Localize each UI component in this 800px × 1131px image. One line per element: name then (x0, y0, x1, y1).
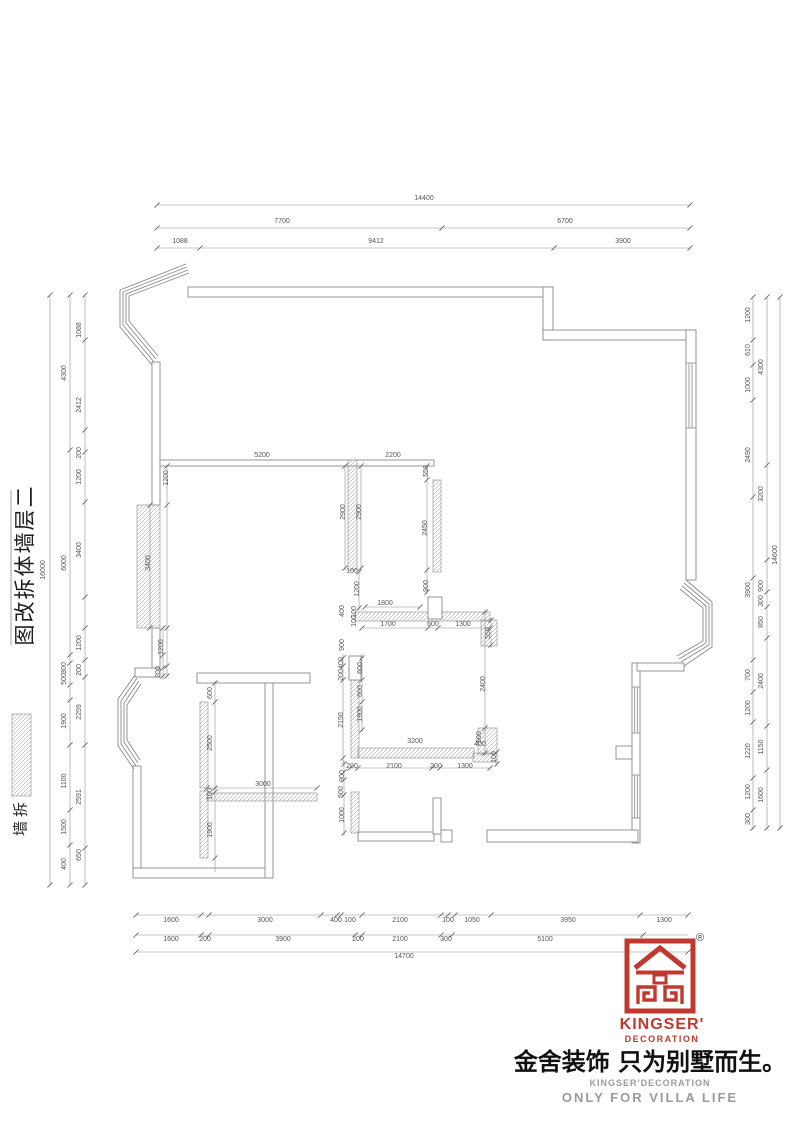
wall (160, 460, 434, 466)
demolish-wall-hatch (207, 793, 317, 801)
dim-label: 1200 (76, 635, 83, 651)
dim-label: 700 (745, 669, 752, 681)
wall (543, 330, 695, 340)
dim-label: 200 (199, 936, 211, 943)
dim-label: 1800 (377, 600, 393, 607)
dim-label: 200 (346, 763, 358, 770)
dim-label: 3900 (745, 582, 752, 598)
vertical-char: 图 (14, 623, 36, 647)
dim-label: 4300 (61, 365, 68, 381)
wall (188, 287, 553, 297)
logo-text-kingser: KINGSER' (592, 1016, 732, 1034)
dim-label: 100 (207, 788, 214, 800)
wall (152, 362, 160, 505)
wall (133, 868, 272, 878)
dim-label: 3950 (560, 917, 576, 924)
wall (441, 830, 452, 842)
dim-label: 1000 (339, 807, 346, 823)
dim-label: 1200 (163, 470, 170, 486)
demolish-wall-hatch (433, 480, 441, 572)
dim-label: 1150 (758, 739, 765, 754)
vertical-char: 二 (14, 485, 36, 509)
dim-label: 100 (442, 917, 454, 924)
kingser-logo (622, 938, 702, 1014)
dim-label: 2400 (480, 676, 487, 692)
dim-label: 900 (758, 580, 765, 592)
dim-label: 200 (76, 664, 83, 676)
dim-label: 2900 (340, 504, 347, 520)
dim-label: 1100 (61, 773, 68, 788)
dim-label: 1088 (172, 238, 188, 245)
dim-label: 3400 (76, 542, 83, 558)
dim-label: 2400 (758, 673, 765, 689)
dim-label: 500 (338, 786, 345, 798)
dim-label: 400 (474, 741, 486, 748)
wall (133, 766, 141, 868)
dim-label: 2412 (76, 397, 83, 413)
dim-label: 1000 (745, 377, 752, 393)
dim-label: 200 (155, 666, 162, 678)
demolish-wall-hatch (358, 748, 474, 758)
dim-label: 200 (76, 447, 83, 459)
dim-label: 1900 (207, 822, 214, 838)
dim-label: 300 (61, 662, 68, 674)
wall (487, 830, 638, 842)
dim-label: 200 (430, 763, 442, 770)
dim-label: 100 (344, 917, 356, 924)
kingser-logo-icon (622, 938, 702, 1014)
dim-label: 400 (338, 657, 345, 669)
dim-label: 1200 (745, 700, 752, 716)
wall (433, 798, 441, 834)
dim-label: 1220 (745, 743, 752, 759)
bay-window-line (123, 267, 187, 362)
dim-label: 1300 (457, 763, 473, 770)
dim-label: 200 (352, 936, 364, 943)
dim-label: 1200 (745, 307, 752, 323)
bay-window-line (679, 586, 706, 659)
dim-label: 1500 (61, 819, 68, 835)
dim-label: 100 (491, 751, 498, 763)
bay-window-line (677, 589, 703, 656)
dim-label: 1200 (354, 581, 361, 597)
dim-label: 1200 (158, 639, 165, 655)
dim-label: 550 (485, 627, 492, 639)
dim-label: 1600 (163, 917, 179, 924)
dim-label: 4300 (758, 359, 765, 375)
dim-label: 3900 (275, 936, 291, 943)
dim-label: 9412 (368, 238, 384, 245)
dim-label: 2100 (392, 917, 408, 924)
dim-label: 300 (440, 936, 452, 943)
dim-label: 550 (423, 465, 430, 477)
dim-label: 2150 (338, 712, 345, 728)
dim-label: 600 (357, 685, 364, 697)
demolish-wall-hatch (355, 612, 490, 621)
dim-label: 6000 (61, 555, 68, 571)
legend-demolish-label: 拆墙 (11, 800, 31, 838)
drawing-sheet: 1440077006700108894123900160030004001002… (0, 0, 800, 1131)
demolish-wall-hatch (351, 792, 359, 833)
vertical-char: 体 (14, 554, 36, 578)
vertical-char: 墙 (14, 531, 36, 555)
dim-label: 1300 (455, 621, 471, 628)
dim-label: 900 (339, 639, 346, 651)
brand-sub-en-2: ONLY FOR VILLA LIFE (500, 1090, 800, 1105)
wall (428, 597, 442, 619)
bay-window-line (681, 583, 709, 662)
dim-label: 3000 (257, 917, 273, 924)
dim-label: 400 (61, 858, 68, 870)
dim-label: 600 (207, 687, 214, 699)
wall (265, 681, 273, 878)
wall (686, 330, 696, 580)
dim-label: 1900 (357, 706, 364, 722)
dim-label: 14400 (414, 195, 434, 202)
vertical-char: 拆 (12, 800, 31, 820)
brand-slogan-cn: 金舍装饰 只为别墅而生。 (500, 1042, 800, 1077)
dim-label: 2100 (392, 936, 408, 943)
wall (616, 746, 632, 759)
dim-label: 14600 (772, 545, 779, 565)
vertical-char: 改 (14, 600, 36, 624)
dim-label: 3000 (255, 781, 271, 788)
dim-label: 1600 (163, 936, 179, 943)
dim-label: 1700 (380, 621, 396, 628)
dim-label: 600 (427, 621, 439, 628)
dim-label: 200 (338, 669, 345, 681)
dim-label: 300 (745, 813, 752, 825)
wall (637, 663, 684, 671)
dim-label: 600 (357, 662, 364, 674)
dim-label: 3200 (407, 738, 423, 745)
vertical-char: 墙 (12, 819, 31, 839)
dim-label: 100 (346, 568, 358, 575)
dim-label: 850 (758, 616, 765, 628)
wall (632, 663, 640, 843)
dim-label: 1088 (76, 322, 83, 338)
dim-label: 14700 (394, 953, 414, 960)
dim-label: 6700 (557, 218, 573, 225)
dim-label: 100 (351, 615, 358, 627)
dim-label: 2200 (385, 452, 401, 459)
brand-sub-en-1: KINGSER'DECORATION (500, 1078, 800, 1088)
dim-label: 900 (423, 580, 430, 592)
dim-label: 7700 (274, 218, 290, 225)
dim-label: 2259 (76, 704, 83, 720)
dim-label: 3200 (758, 486, 765, 502)
dim-label: 300 (758, 595, 765, 607)
dim-label: 500 (61, 673, 68, 685)
dim-label: 5200 (254, 452, 270, 459)
vertical-char: 拆 (14, 577, 36, 601)
dim-label: 400 (339, 605, 346, 617)
dim-label: 2490 (745, 447, 752, 463)
dim-label: 1050 (464, 917, 480, 924)
dim-label: 1300 (656, 917, 672, 924)
dim-label: 1200 (745, 784, 752, 800)
demolish-wall-hatch (12, 714, 31, 796)
dim-label: 400 (330, 917, 342, 924)
dim-label: 5100 (537, 936, 553, 943)
dim-label: 2500 (207, 735, 214, 751)
dim-label: 2591 (76, 789, 83, 805)
dim-label: 2450 (422, 520, 429, 536)
dim-label: 2100 (386, 763, 402, 770)
dim-label: 650 (76, 849, 83, 861)
dim-label: 900 (339, 770, 346, 782)
dim-label: 610 (745, 344, 752, 356)
dim-label: 3400 (145, 555, 152, 571)
wall (358, 832, 434, 841)
vertical-char: 层 (14, 508, 36, 532)
dim-label: 1600 (758, 787, 765, 803)
drawing-title: 二层墙体拆改图 (13, 486, 37, 646)
dim-label: 16000 (40, 560, 47, 580)
dim-label: 3900 (615, 238, 631, 245)
dim-label: 1200 (76, 469, 83, 485)
registered-mark: ® (696, 932, 704, 944)
dim-label: 1900 (61, 713, 68, 729)
wall (197, 673, 310, 683)
dim-label: 2900 (356, 504, 363, 520)
